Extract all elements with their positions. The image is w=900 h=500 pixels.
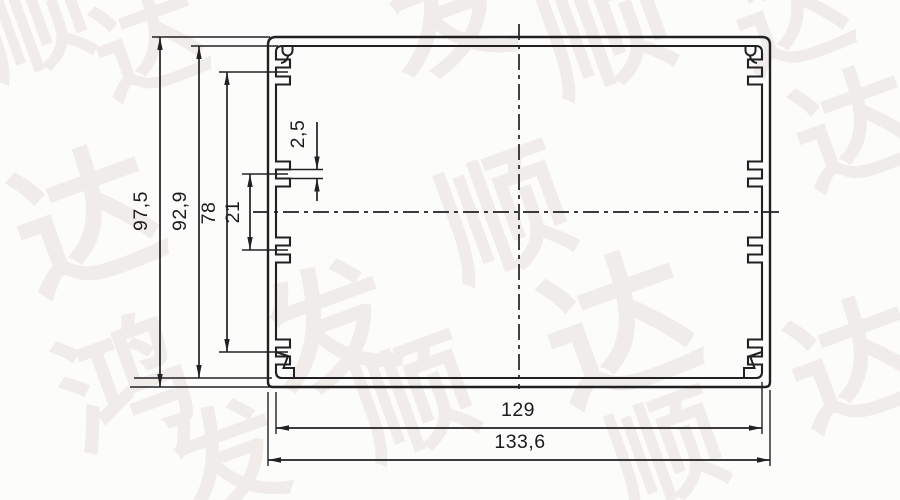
dimension-label-outer_height: 97,5 — [130, 191, 152, 231]
dimension-label-slot_gap: 2,5 — [287, 120, 309, 149]
dimension-label-slot_span_inner: 21 — [222, 201, 244, 224]
dimension-label-inner_height: 92,9 — [169, 191, 191, 231]
dimension-label-outer_width: 133,6 — [494, 431, 545, 453]
dimension-slot_gap: 2,5 — [287, 120, 323, 201]
scanned-technical-drawing: 顺达发顺达达达顺达发鸿顺达发顺 97,592,978212,5129133,6 — [0, 0, 900, 500]
dimension-label-inner_width: 129 — [501, 399, 535, 421]
center-lines — [253, 24, 779, 389]
profile-cross-section-drawing: 97,592,978212,5129133,6 — [0, 0, 900, 500]
dimension-label-slot_span_outer: 78 — [198, 202, 220, 225]
dimension-inner_width: 129 — [276, 382, 762, 434]
